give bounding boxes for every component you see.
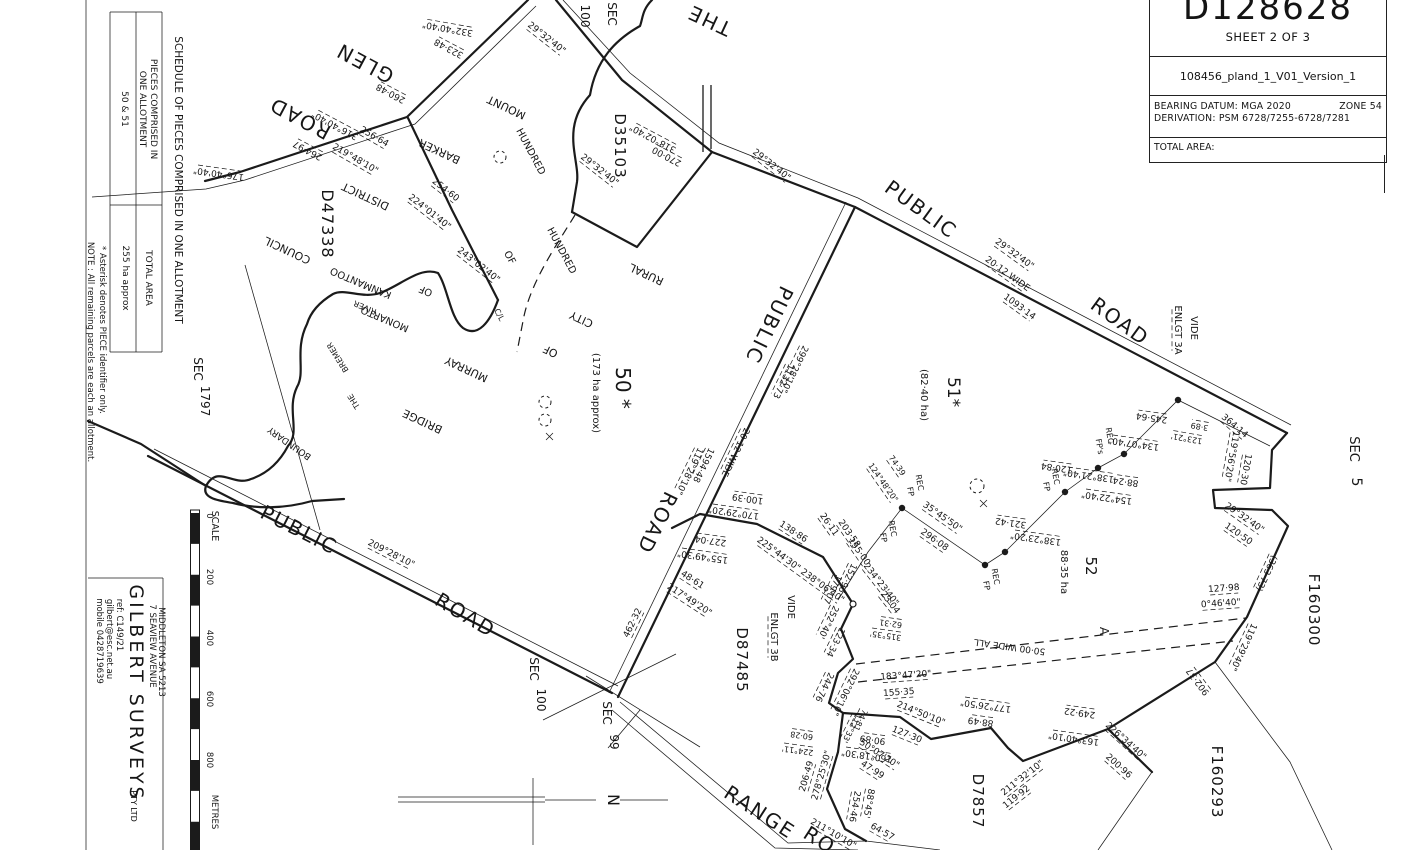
- svg-text:SEC: SEC: [1346, 436, 1361, 462]
- svg-text:PIECES COMPRISED IN: PIECES COMPRISED IN: [148, 59, 158, 159]
- svg-text:52: 52: [1082, 556, 1100, 575]
- svg-text:88°45': 88°45': [860, 788, 875, 819]
- svg-text:50 *: 50 *: [611, 367, 635, 409]
- plan-label: 200·96: [1103, 752, 1133, 781]
- plan-label: FP: [905, 486, 916, 497]
- scale-bar: [191, 510, 200, 850]
- svg-text:SEC: SEC: [191, 357, 205, 381]
- svg-text:PUBLIC: PUBLIC: [880, 175, 962, 243]
- plan-label: 214°50'10": [895, 700, 946, 728]
- svg-text:249·22: 249·22: [1063, 705, 1096, 719]
- svg-text:THE: THE: [683, 0, 736, 41]
- plan-label: GLEN: [332, 38, 398, 88]
- title-block: D128628 SHEET 2 OF 3 108456_pland_1_V01_…: [1149, 0, 1387, 163]
- plan-label: (173 ha approx): [590, 353, 601, 433]
- plan-label: THE: [346, 392, 363, 411]
- cross-marks: [546, 433, 987, 507]
- plan-label: D35103: [611, 113, 629, 178]
- boundary-line: [245, 265, 320, 530]
- plan-label: 100: [578, 5, 592, 28]
- plan-label: 119°29'40": [1227, 622, 1258, 673]
- svg-text:BREMER: BREMER: [325, 340, 351, 374]
- svg-text:PUBLIC: PUBLIC: [740, 282, 798, 368]
- svg-text:315°35': 315°35': [869, 629, 902, 642]
- plan-label: THE: [683, 0, 736, 41]
- surveyor-mobile: mobile 0428719639: [94, 598, 104, 684]
- plan-label: SEC: [605, 2, 619, 26]
- svg-text:260·48: 260·48: [375, 81, 408, 105]
- river-meander: [205, 272, 498, 508]
- svg-text:TOTAL AREA: TOTAL AREA: [143, 249, 153, 307]
- zone: ZONE 54: [1339, 101, 1382, 113]
- plan-label: 155·35: [883, 687, 915, 699]
- svg-text:PUBLIC: PUBLIC: [257, 500, 342, 559]
- total-area-label: TOTAL AREA:: [1154, 142, 1214, 153]
- schedule-text: NOTE : All remaining parcels are each an…: [85, 242, 95, 462]
- svg-text:D47338: D47338: [318, 189, 337, 258]
- svg-text:323·48: 323·48: [433, 36, 466, 60]
- scale-bar-segment: [191, 760, 200, 791]
- scale-bar-segment: [191, 513, 200, 544]
- svg-text:255 ha approx: 255 ha approx: [120, 245, 130, 311]
- svg-text:OF: OF: [501, 249, 517, 266]
- plan-label: 88·35 ha: [1058, 550, 1069, 594]
- survey-mark: [1062, 489, 1068, 495]
- plan-label: 5: [1348, 478, 1364, 487]
- glen-road-line: [205, 0, 528, 181]
- public-road-sw-line: [148, 456, 612, 693]
- svg-text:gilbert@esc.net.au: gilbert@esc.net.au: [104, 599, 114, 679]
- svg-text:902·37: 902·37: [1185, 666, 1212, 697]
- schedule-text: 255 ha approx: [120, 245, 130, 311]
- total-area-row: TOTAL AREA:: [1150, 138, 1386, 162]
- plan-number: D128628: [1150, 0, 1386, 28]
- bearing-datum: BEARING DATUM: MGA 2020: [1154, 101, 1291, 112]
- svg-text:HUNDRED: HUNDRED: [544, 226, 578, 276]
- svg-text:SCHEDULE OF PIECES COMPRISED I: SCHEDULE OF PIECES COMPRISED IN ONE ALLO…: [172, 36, 184, 324]
- survey-mark: [1175, 397, 1181, 403]
- plan-label: (363·73): [1253, 553, 1278, 592]
- svg-text:DISTRICT: DISTRICT: [340, 179, 392, 212]
- plan-label: FP: [1041, 481, 1052, 492]
- svg-text:(82·40 ha): (82·40 ha): [918, 369, 929, 421]
- svg-text:FP: FP: [878, 532, 889, 543]
- plan-label: OF: [541, 342, 560, 360]
- plan-label: ROAD: [1086, 292, 1154, 350]
- scale-bar-segment: [191, 575, 200, 606]
- survey-plan-sheet: THEGLENROAD332°40'40"323·48260·48316°40'…: [0, 0, 1422, 850]
- svg-text:MURRAY: MURRAY: [443, 353, 490, 384]
- svg-text:HUNDRED: HUNDRED: [513, 127, 547, 177]
- svg-text:MIDDLETON SA 5213: MIDDLETON SA 5213: [156, 607, 166, 697]
- svg-text:100: 100: [578, 5, 592, 28]
- surveyor-name: GILBERT SURVEYS: [125, 584, 147, 801]
- svg-text:183°47'20": 183°47'20": [880, 669, 932, 683]
- plan-label: 217°49'20": [665, 582, 713, 618]
- svg-text:F160293: F160293: [1208, 746, 1226, 819]
- plan-label: 163°40'10": [1048, 729, 1100, 746]
- plan-label: 51*: [943, 377, 963, 407]
- surveyor-email: gilbert@esc.net.au: [104, 599, 114, 679]
- scale-tick: 0: [204, 513, 214, 518]
- plan-label: CITY: [567, 308, 595, 330]
- plan-label: 245·64: [1135, 410, 1168, 424]
- plan-label: 100·39: [731, 491, 764, 505]
- schedule-text: SCHEDULE OF PIECES COMPRISED IN ONE ALLO…: [172, 36, 184, 324]
- svg-text:SEC: SEC: [600, 701, 614, 725]
- svg-text:ROAD: ROAD: [431, 588, 500, 643]
- svg-text:COUNCIL: COUNCIL: [261, 233, 312, 266]
- svg-text:214°50'10": 214°50'10": [895, 700, 946, 728]
- svg-text:ENLGT 3A: ENLGT 3A: [1172, 305, 1183, 354]
- plan-label: 127·98: [1208, 583, 1240, 595]
- surveyor-ref: ref: C149/21: [114, 599, 124, 652]
- svg-text:1093·14: 1093·14: [1001, 292, 1037, 322]
- svg-text:D35103: D35103: [611, 113, 629, 178]
- scale-unit: METRES: [209, 795, 219, 830]
- plan-label: OF: [501, 249, 517, 266]
- plan-label: 183°47'20": [880, 669, 932, 683]
- survey-mark: [1095, 465, 1101, 471]
- plan-label: REC: [1104, 427, 1116, 445]
- file-name: 108456_pland_1_V01_Version_1: [1180, 70, 1356, 83]
- plan-label: SEC: [527, 657, 541, 681]
- plan-label: D47338: [318, 189, 337, 258]
- bearing-datum-line: BEARING DATUM: MGA 2020 ZONE 54: [1154, 101, 1382, 113]
- svg-text:88·35 ha: 88·35 ha: [1058, 550, 1069, 594]
- plan-label: PUBLIC: [740, 282, 798, 368]
- plan-label: 50·00 WIDE ALL: [973, 636, 1046, 656]
- plan-label: ROAD: [431, 588, 500, 643]
- svg-text:BARKER: BARKER: [416, 136, 462, 167]
- plan-label: 260·48: [375, 81, 408, 105]
- plan-label: 227·04: [694, 533, 727, 547]
- surveyor-suffix: PTY LTD: [129, 790, 138, 822]
- plan-label: 138°23'20": [1010, 529, 1062, 546]
- svg-text:ENLGT 3B: ENLGT 3B: [768, 612, 779, 661]
- plan-label: 29°32'40": [525, 20, 567, 56]
- plan-label: COUNCIL: [261, 233, 312, 266]
- plan-label: SEC: [600, 701, 614, 725]
- svg-text:FP: FP: [981, 580, 992, 591]
- plan-label: 209°28'10": [366, 538, 416, 570]
- plan-label: HUNDRED: [513, 127, 547, 177]
- svg-text:243°02'40": 243°02'40": [455, 246, 502, 285]
- svg-text:NOTE : All remaining parcels a: NOTE : All remaining parcels are each an…: [85, 242, 95, 462]
- plan-label: C/L: [492, 307, 506, 323]
- plan-label: 1093·14: [1001, 292, 1037, 322]
- svg-text:RO: RO: [799, 821, 840, 850]
- plan-label: 99: [607, 734, 621, 749]
- svg-text:REC: REC: [1104, 427, 1116, 445]
- svg-text:163°40'10": 163°40'10": [1048, 729, 1100, 746]
- svg-text:PTY LTD: PTY LTD: [129, 790, 138, 822]
- svg-text:FP: FP: [1041, 481, 1052, 492]
- plan-label: VIDE: [785, 595, 796, 619]
- schedule-text: TOTAL AREA: [143, 249, 153, 307]
- survey-mark: [899, 505, 905, 511]
- public-road-sw-parallel: [154, 449, 618, 686]
- svg-text:FP: FP: [905, 486, 916, 497]
- svg-text:BOUNDARY: BOUNDARY: [266, 424, 314, 461]
- svg-text:127·30: 127·30: [890, 725, 923, 746]
- svg-text:29°32'40": 29°32'40": [750, 147, 792, 183]
- svg-text:GLEN: GLEN: [332, 38, 398, 88]
- plan-label: SEC: [1346, 436, 1361, 462]
- svg-text:OF: OF: [541, 342, 560, 360]
- svg-text:177°26'50": 177°26'50": [960, 696, 1012, 713]
- survey-mark-open: [850, 601, 856, 607]
- plan-label: 88°45': [860, 788, 875, 819]
- road-stub: [703, 85, 711, 152]
- svg-text:217°49'20": 217°49'20": [665, 582, 713, 618]
- svg-text:OF: OF: [417, 282, 434, 298]
- sheet-number: SHEET 2 OF 3: [1150, 30, 1386, 44]
- plan-label: HUNDRED: [544, 226, 578, 276]
- plan-label: PUBLIC: [880, 175, 962, 243]
- plan-label: 60·28: [790, 728, 814, 741]
- scale-tick: 600: [204, 691, 214, 707]
- svg-text:50 & 51: 50 & 51: [119, 91, 129, 127]
- svg-text:CITY: CITY: [567, 308, 595, 330]
- scale-bar-outline: [191, 510, 200, 850]
- plan-label: F160300: [1305, 574, 1323, 647]
- plan-label: DISTRICT: [340, 179, 392, 212]
- plan-label: 48·61: [679, 569, 706, 591]
- plan-label: 296·08: [918, 527, 950, 553]
- plan-label: 62·31: [879, 616, 903, 629]
- svg-text:METRES: METRES: [209, 795, 219, 830]
- svg-text:227·04: 227·04: [694, 533, 727, 547]
- plan-label: 120·30: [1237, 453, 1252, 486]
- svg-text:VIDE: VIDE: [785, 595, 796, 619]
- plan-label: PUBLIC: [257, 500, 342, 559]
- schedule-text: 50 & 51: [119, 91, 129, 127]
- svg-text:296·08: 296·08: [918, 527, 950, 553]
- svg-text:GILBERT SURVEYS: GILBERT SURVEYS: [125, 584, 147, 801]
- svg-text:D87485: D87485: [733, 627, 751, 692]
- svg-text:332°40'40": 332°40'40": [422, 19, 474, 38]
- svg-text:99: 99: [607, 734, 621, 749]
- plan-label: 176°40'40": [193, 164, 245, 181]
- svg-text:200·96: 200·96: [1103, 752, 1133, 781]
- schedule-text: ONE ALLOTMENT: [137, 71, 147, 148]
- plan-label: 0°46'40": [1201, 598, 1241, 611]
- plan-label: 127·30: [890, 725, 923, 746]
- plan-label: FP: [981, 580, 992, 591]
- plan-label: BREMER: [325, 340, 351, 374]
- plan-label: 462·32: [622, 607, 645, 640]
- plan-label: VIDE: [1188, 316, 1199, 340]
- svg-text:0°46'40": 0°46'40": [1201, 598, 1241, 611]
- svg-text:119°56'20": 119°56'20": [1222, 430, 1241, 482]
- svg-text:D7857: D7857: [969, 774, 987, 829]
- plan-label: 254·46: [846, 790, 861, 823]
- svg-text:20·12 WIDE: 20·12 WIDE: [719, 426, 751, 478]
- plan-label: 332°40'40": [422, 19, 474, 38]
- north-arrow-label: N: [604, 794, 623, 806]
- plan-label: FP's: [1094, 438, 1106, 455]
- survey-mark: [1121, 451, 1127, 457]
- plan-label: 902·37: [1185, 666, 1212, 697]
- svg-text:154°22'40": 154°22'40": [1081, 488, 1133, 505]
- plan-label: 29°32'40": [750, 147, 792, 183]
- plan-label: RURAL: [626, 260, 665, 288]
- plan-label: RO: [799, 821, 840, 850]
- surveyor-address: MIDDLETON SA 5213: [156, 607, 166, 697]
- svg-text:7 SEAVIEW AVENUE: 7 SEAVIEW AVENUE: [147, 604, 157, 687]
- survey-mark: [982, 562, 988, 568]
- svg-text:123°21': 123°21': [1170, 431, 1203, 445]
- plan-label: 154°22'40": [1081, 488, 1133, 505]
- plan-label: OF: [417, 282, 434, 298]
- scale-tick: 800: [204, 752, 214, 768]
- svg-text:1797: 1797: [198, 386, 212, 417]
- plan-label: ENLGT 3A: [1172, 305, 1183, 354]
- file-name-row: 108456_pland_1_V01_Version_1: [1150, 57, 1386, 96]
- plan-label: 88·49: [967, 714, 994, 728]
- svg-text:209°28'10": 209°28'10": [366, 538, 416, 570]
- scale-tick: 400: [204, 630, 214, 646]
- plan-label: 249·22: [1063, 705, 1096, 719]
- plan-label: 50 *: [611, 367, 635, 409]
- svg-text:138°23'20": 138°23'20": [1010, 529, 1062, 546]
- plan-label: 100: [534, 689, 548, 712]
- svg-text:176°40'40": 176°40'40": [193, 164, 245, 181]
- scale-bar-segment: [191, 822, 200, 850]
- plan-label: 123°21': [1170, 430, 1203, 445]
- svg-text:51*: 51*: [943, 377, 963, 407]
- svg-text:100: 100: [534, 689, 548, 712]
- title-block-extension-line: [1384, 155, 1385, 193]
- svg-text:THE: THE: [346, 392, 363, 411]
- svg-text:134°07'40": 134°07'40": [1108, 434, 1160, 451]
- svg-text:0: 0: [204, 513, 214, 518]
- plan-label: 119°56'20": [1222, 430, 1241, 482]
- svg-text:VIDE: VIDE: [1188, 316, 1199, 340]
- svg-text:N: N: [604, 794, 623, 806]
- survey-mark: [1002, 549, 1008, 555]
- hundred-boundary-dashed: [517, 215, 575, 352]
- plan-label: 177°26'50": [960, 696, 1012, 713]
- svg-text:C/L: C/L: [492, 307, 506, 323]
- plan-label: SEC: [191, 357, 205, 381]
- plan-label: D7857: [969, 774, 987, 829]
- title-block-header: D128628 SHEET 2 OF 3: [1150, 0, 1386, 57]
- svg-text:120·30: 120·30: [1237, 453, 1252, 486]
- derivation: DERIVATION: PSM 6728/7255-6728/7281: [1154, 113, 1382, 125]
- plan-label: MURRAY: [443, 353, 490, 384]
- plan-label: BOUNDARY: [266, 424, 314, 461]
- plan-label: 52: [1082, 556, 1100, 575]
- svg-text:ROAD: ROAD: [1086, 292, 1154, 350]
- svg-text:mobile 0428719639: mobile 0428719639: [94, 598, 104, 684]
- ruin-symbol: [539, 396, 551, 408]
- svg-text:321·42: 321·42: [994, 515, 1027, 529]
- schedule-text: * Asterisk denotes PIECE identifier only…: [97, 246, 107, 414]
- plan-label: 323·48: [433, 36, 466, 60]
- svg-text:BRIDGE: BRIDGE: [401, 406, 445, 436]
- plan-label: MOUNT: [485, 92, 528, 121]
- svg-text:119°29'40": 119°29'40": [1227, 622, 1258, 673]
- svg-text:200: 200: [204, 569, 214, 585]
- ruin-symbol: [970, 479, 984, 493]
- plan-label: 1797: [198, 386, 212, 417]
- scale-bar-segment: [191, 698, 200, 729]
- svg-text:800: 800: [204, 752, 214, 768]
- plan-label: A: [1097, 627, 1111, 636]
- svg-text:A: A: [1097, 627, 1111, 636]
- svg-text:* Asterisk denotes PIECE ident: * Asterisk denotes PIECE identifier only…: [97, 246, 107, 414]
- plan-label: BARKER: [416, 136, 462, 167]
- plan-label: 20·12 WIDE: [719, 426, 751, 478]
- ruin-symbol: [539, 414, 551, 426]
- plan-label: (82·40 ha): [918, 369, 929, 421]
- svg-text:100·39: 100·39: [731, 491, 764, 505]
- plan-label: ROAD: [632, 488, 683, 558]
- plan-label: D87485: [733, 627, 751, 692]
- plan-label: 134°07'40": [1108, 434, 1160, 451]
- plan-label: 321·42: [994, 515, 1027, 529]
- svg-text:254·46: 254·46: [846, 790, 861, 823]
- plan-label: 224°11': [781, 743, 814, 757]
- svg-text:224°11': 224°11': [781, 744, 814, 757]
- plan-label: RANGE: [720, 780, 800, 844]
- plan-label: 315°35': [869, 628, 902, 642]
- svg-text:ROAD: ROAD: [632, 488, 683, 558]
- svg-text:ONE ALLOTMENT: ONE ALLOTMENT: [137, 71, 147, 148]
- svg-text:(363·73): (363·73): [1253, 553, 1278, 592]
- plan-label: ENLGT 3B: [768, 612, 779, 661]
- plan-label: 74·39: [886, 454, 907, 478]
- north-arrow-lines: [398, 778, 668, 845]
- plan-label: 244·76: [812, 671, 835, 704]
- scale-bar-segment: [191, 637, 200, 668]
- plan-label: 3·89: [1190, 419, 1209, 432]
- svg-text:245·64: 245·64: [1135, 410, 1168, 424]
- plan-label: F160293: [1208, 746, 1226, 819]
- svg-text:170°29'20": 170°29'20": [708, 503, 760, 520]
- plan-label: BRIDGE: [401, 406, 445, 436]
- surveyor-address: 7 SEAVIEW AVENUE: [147, 604, 157, 687]
- svg-text:254·60: 254·60: [430, 177, 461, 204]
- svg-text:RURAL: RURAL: [626, 260, 665, 288]
- plan-label: 64·57: [868, 821, 895, 843]
- svg-text:74·39: 74·39: [887, 454, 908, 478]
- svg-text:(173 ha approx): (173 ha approx): [590, 353, 601, 433]
- svg-text:ref: C149/21: ref: C149/21: [114, 599, 124, 652]
- svg-text:219°48'10": 219°48'10": [330, 142, 379, 176]
- plan-label: FP: [878, 532, 889, 543]
- scale-tick: 200: [204, 569, 214, 585]
- svg-text:400: 400: [204, 630, 214, 646]
- plan-label: 254·60: [430, 177, 461, 204]
- svg-text:FP's: FP's: [1094, 438, 1106, 455]
- svg-text:SEC: SEC: [527, 657, 541, 681]
- svg-text:50·00 WIDE ALL: 50·00 WIDE ALL: [973, 636, 1046, 656]
- plan-label: 219°48'10": [330, 142, 379, 176]
- svg-text:5: 5: [1348, 478, 1364, 487]
- ruin-symbol: [494, 151, 506, 163]
- plan-label: 88·24: [1112, 474, 1139, 488]
- svg-text:600: 600: [204, 691, 214, 707]
- svg-text:F160300: F160300: [1305, 574, 1323, 647]
- svg-text:MOUNT: MOUNT: [485, 92, 528, 121]
- plan-label: 243°02'40": [455, 246, 502, 285]
- svg-text:RANGE: RANGE: [720, 780, 800, 844]
- svg-text:SEC: SEC: [605, 2, 619, 26]
- datum-row: BEARING DATUM: MGA 2020 ZONE 54 DERIVATI…: [1150, 96, 1386, 138]
